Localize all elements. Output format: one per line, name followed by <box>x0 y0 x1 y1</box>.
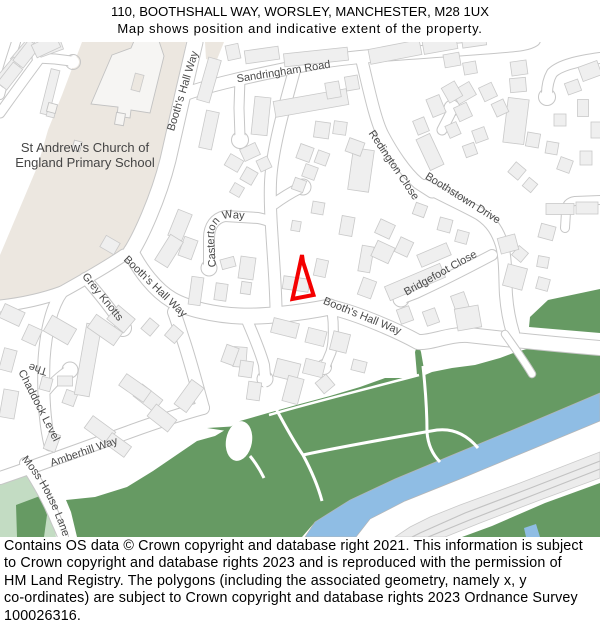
svg-text:St Andrew's Church of: St Andrew's Church of <box>21 140 150 155</box>
svg-text:England Primary School: England Primary School <box>15 155 155 170</box>
